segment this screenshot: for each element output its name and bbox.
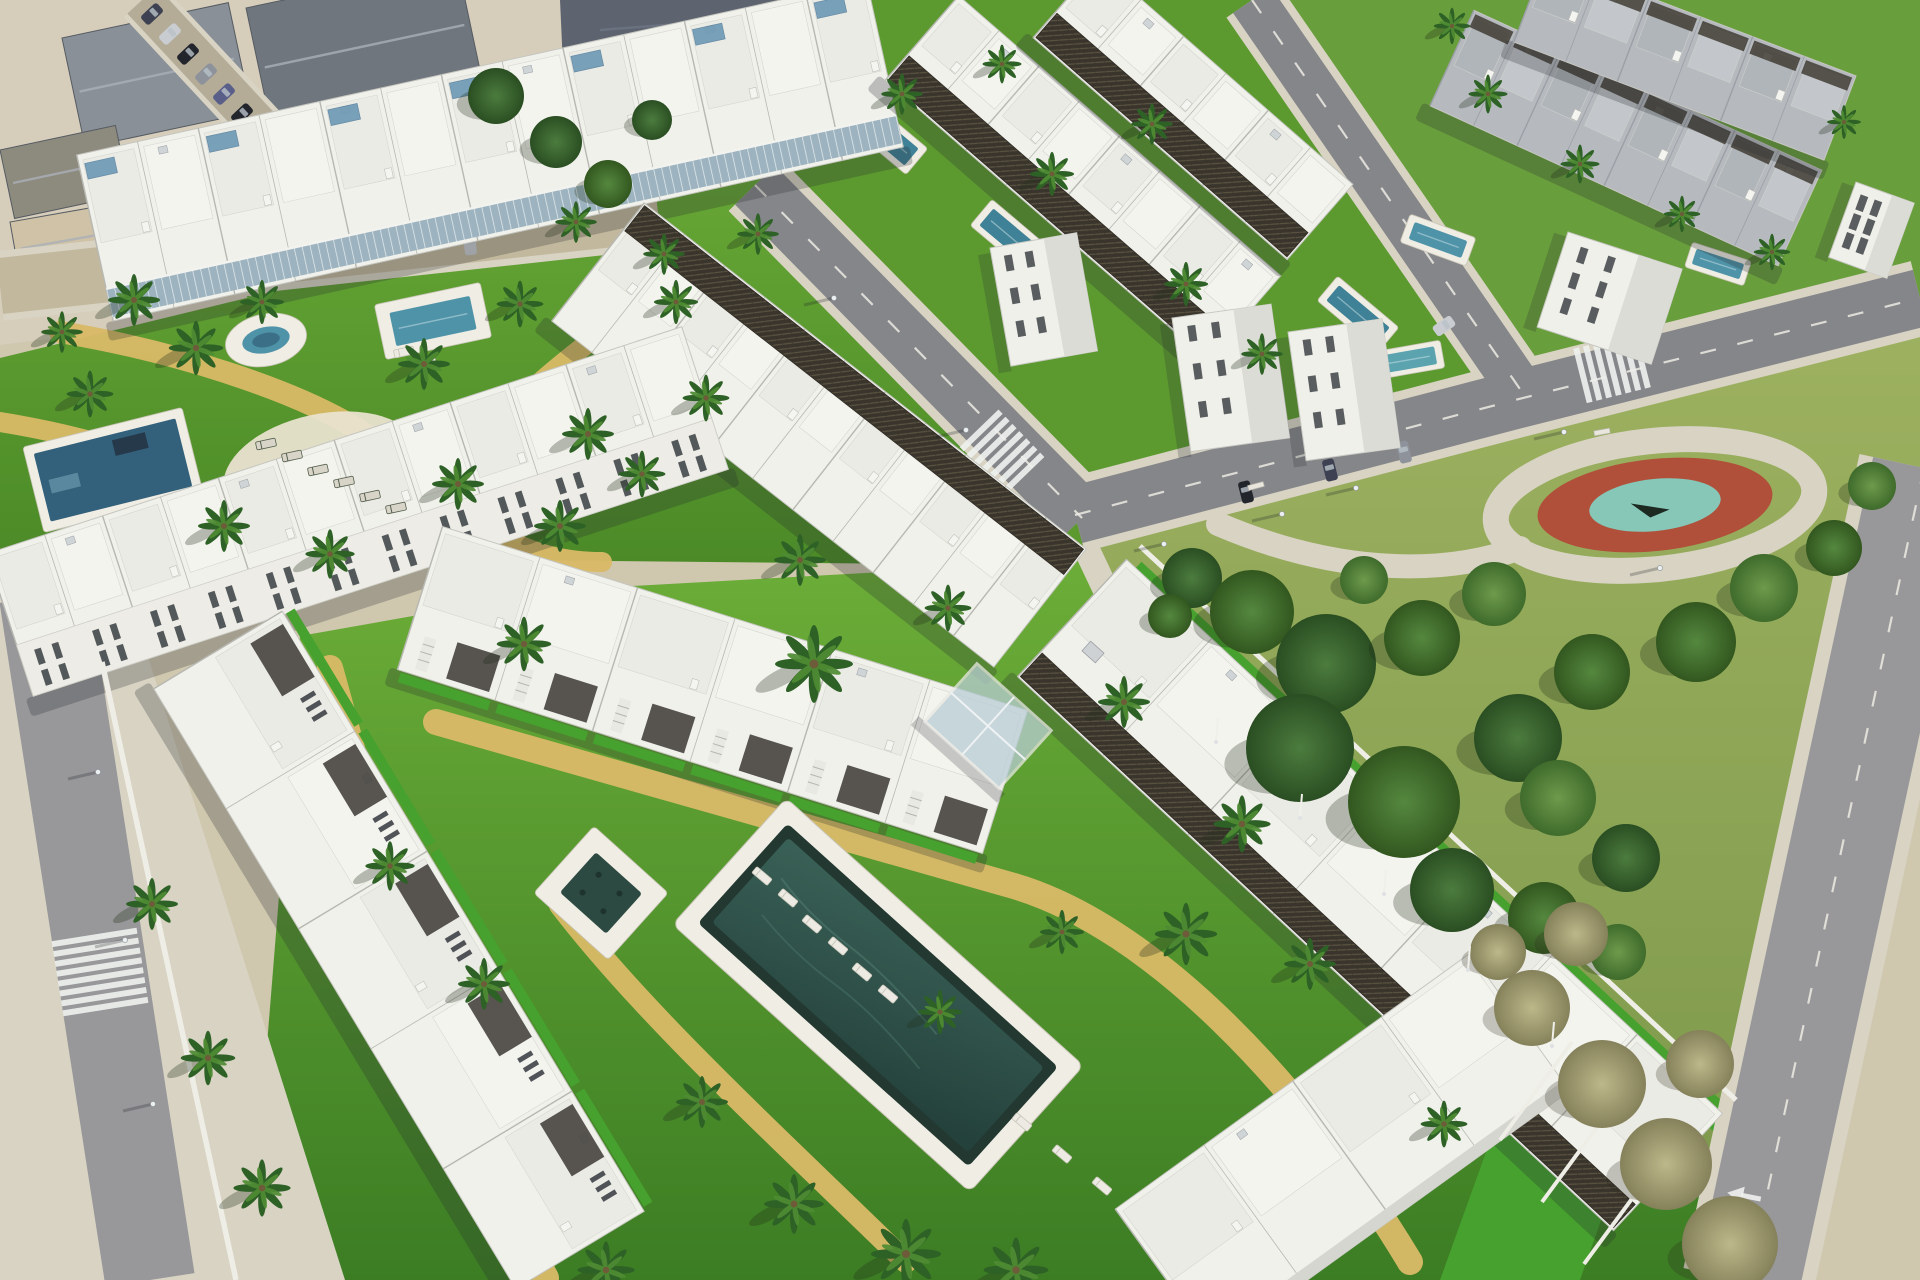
tree [1348,746,1460,858]
palm-tree [1098,676,1150,728]
detached-house [977,233,1098,374]
palm-tree [683,375,730,422]
aerial-render [0,0,1920,1280]
palm-tree [534,500,586,552]
palm-tree [126,878,178,930]
palm-tree [198,500,250,552]
palm-tree [365,841,414,890]
autumn-tree [1494,970,1570,1046]
palm-tree [181,1031,236,1086]
palm-tree [881,73,923,115]
autumn-tree [1544,902,1608,966]
street-lamp [150,1101,155,1106]
street-lamp [1353,485,1358,490]
palm-tree [233,1159,290,1216]
palm-tree [676,1076,728,1128]
palm-tree [1030,152,1074,196]
palm-tree [1155,903,1217,965]
palm-tree [458,958,510,1010]
tree [1554,634,1630,710]
tree [1340,556,1388,604]
street-lamp [1279,511,1284,516]
pole-base [1550,1044,1554,1048]
palm-tree [432,458,484,510]
palm-tree [169,321,224,376]
palm-tree [1213,795,1270,852]
palm-tree [1131,103,1173,145]
autumn-tree [1470,924,1526,980]
palm-tree [1164,262,1208,306]
street-lamp [122,937,127,942]
palm-tree [619,451,666,498]
palm-tree [1664,196,1700,232]
palm-tree [398,338,450,390]
pole-base [1382,892,1386,896]
street-lamp [1657,565,1662,570]
palm-tree [774,534,826,586]
tree [1384,600,1460,676]
palm-tree [67,371,114,418]
detached-house [1159,304,1290,458]
palm-tree [555,201,597,243]
tree [530,116,582,168]
palm-tree [305,529,354,578]
palm-tree [737,213,779,255]
detached-house [1275,319,1401,468]
palm-tree [654,280,698,324]
palm-tree [497,617,552,672]
tree [1520,760,1596,836]
palm-tree [925,585,972,632]
palm-tree [562,408,614,460]
tree [1730,554,1798,622]
autumn-tree [1558,1040,1646,1128]
tree [468,68,524,124]
palm-tree [1469,75,1508,114]
tree [584,160,632,208]
palm-tree [108,274,160,326]
palm-tree [1421,1101,1468,1148]
palm-tree [240,280,284,324]
autumn-tree [1666,1030,1734,1098]
pole-base [1466,968,1470,972]
street-lamp [963,427,968,432]
autumn-tree [1620,1118,1712,1210]
palm-tree [918,990,962,1034]
tree [1148,594,1192,638]
palm-tree [1754,234,1790,270]
tree [1806,520,1862,576]
street-lamp [1561,429,1566,434]
tree [1592,824,1660,892]
tree [1848,462,1896,510]
tree [1656,602,1736,682]
street-lamp [95,769,100,774]
palm-tree [983,45,1022,84]
palm-tree [497,281,544,328]
palm-tree [1284,938,1336,990]
aerial-render-stage [0,0,1920,1280]
palm-tree [775,625,853,703]
palm-tree [764,1174,824,1234]
tree [632,100,672,140]
tree [1410,848,1494,932]
tree [1246,694,1354,802]
tree [1462,562,1526,626]
pole-base [1298,816,1302,820]
palm-tree [1241,333,1283,375]
palm-tree [1561,145,1600,184]
palm-tree [1827,105,1861,139]
street-lamp [1161,541,1166,546]
palm-tree [643,233,685,275]
palm-tree [1040,910,1084,954]
palm-tree [1434,8,1470,44]
street-lamp [831,295,836,300]
palm-tree [41,311,83,353]
pole-base [1214,740,1218,744]
